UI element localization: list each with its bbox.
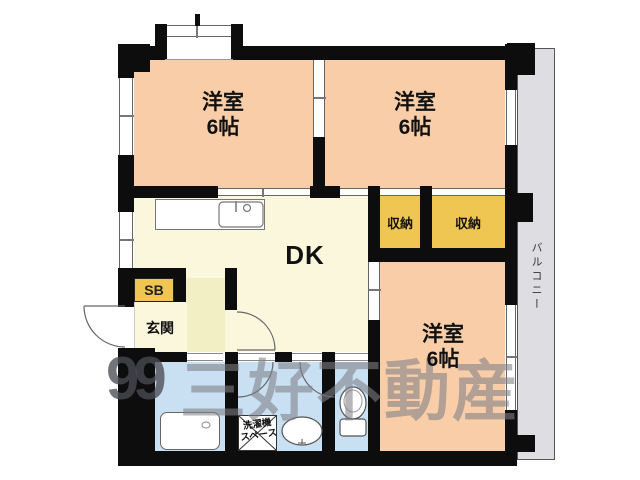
room-name: 洋室 (365, 90, 465, 115)
bedroom-3-label: 洋室 6帖 (393, 322, 493, 372)
room-size: 6帖 (365, 115, 465, 140)
balcony-label: バルコニー (528, 222, 544, 332)
watermark-logo: 99 (106, 344, 161, 413)
room-name: 洋室 (173, 90, 273, 115)
kitchen-sink-icon (219, 201, 263, 227)
room-name: 洋室 (393, 322, 493, 347)
closet-left-label: 収納 (375, 216, 425, 231)
entrance-door-arc (84, 306, 125, 347)
entrance-label: 玄関 (132, 320, 188, 336)
bedroom-2-label: 洋室 6帖 (365, 90, 465, 140)
closet-right-label: 収納 (442, 216, 494, 231)
room-size: 6帖 (393, 347, 493, 372)
shoe-box-label: SB (134, 278, 174, 302)
room-size: 6帖 (173, 115, 273, 140)
dining-kitchen-label: DK (265, 241, 345, 269)
floor-plan: 洋室 6帖 洋室 6帖 洋室 6帖 収納 収納 DK SB 玄関 洗濯機 スペー… (0, 0, 640, 480)
bedroom-1-label: 洋室 6帖 (173, 90, 273, 140)
